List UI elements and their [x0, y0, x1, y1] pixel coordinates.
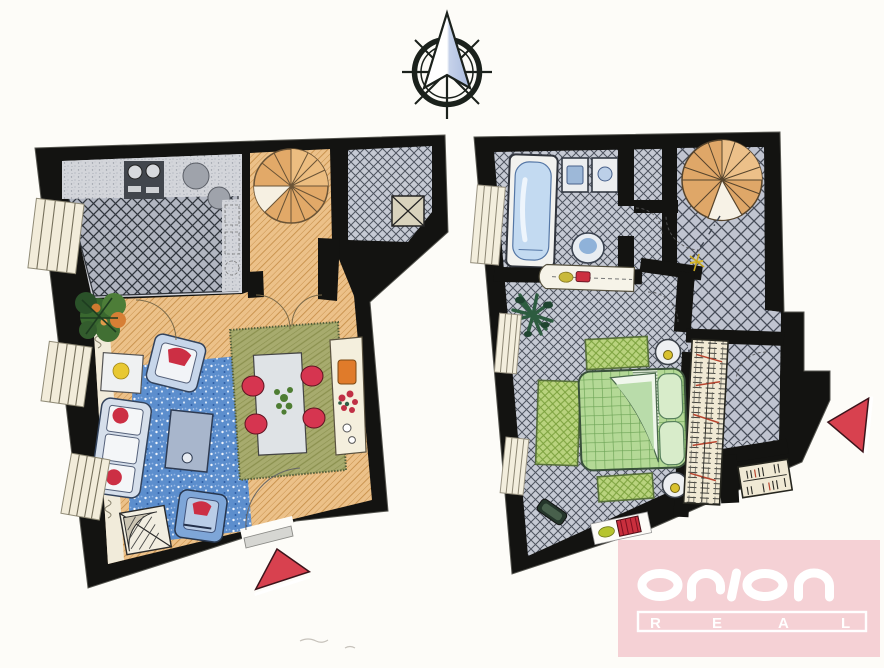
svg-text:A: A — [778, 615, 789, 632]
svg-text:L: L — [841, 615, 850, 632]
svg-text:R: R — [650, 615, 661, 632]
svg-text:E: E — [712, 615, 722, 632]
